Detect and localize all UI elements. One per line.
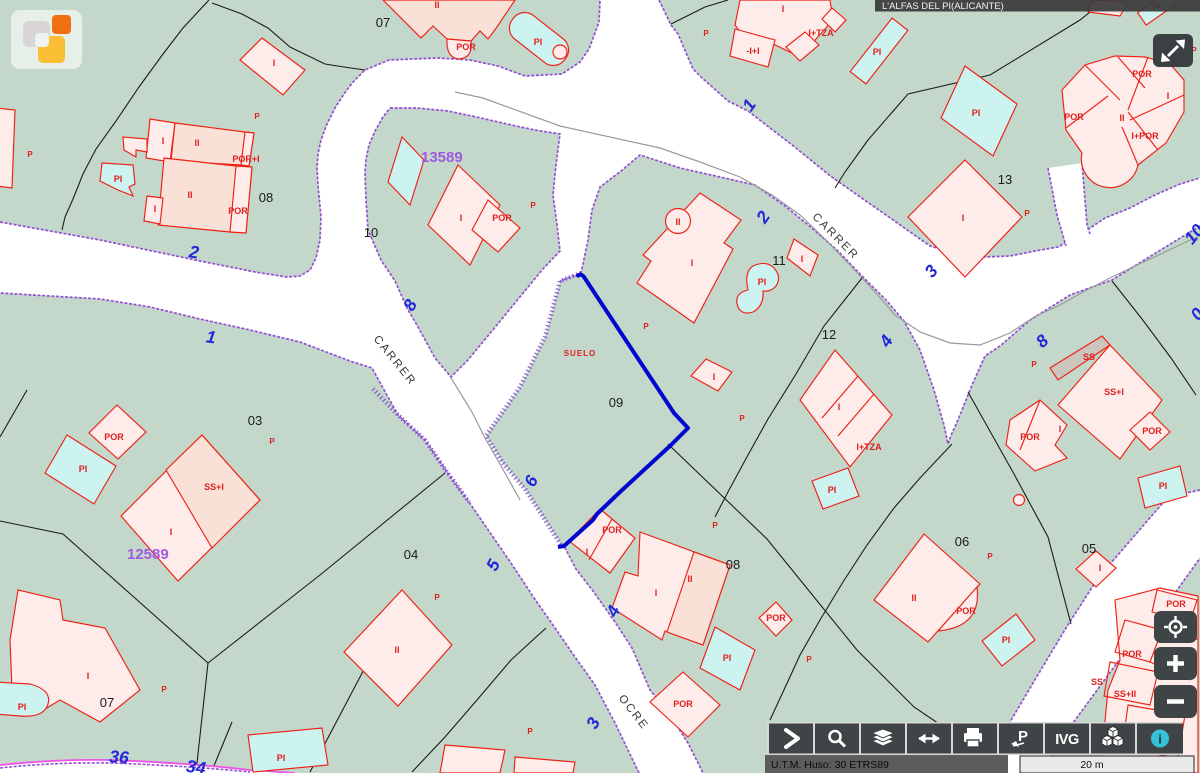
svg-text:POR: POR xyxy=(104,432,124,442)
svg-text:10: 10 xyxy=(364,225,378,240)
svg-text:I: I xyxy=(838,402,841,412)
svg-text:POR: POR xyxy=(1142,426,1162,436)
svg-text:SS+II: SS+II xyxy=(1114,689,1136,699)
svg-text:POR: POR xyxy=(1132,69,1152,79)
svg-text:07: 07 xyxy=(100,695,114,710)
svg-text:PI: PI xyxy=(1159,481,1168,491)
svg-text:P: P xyxy=(527,727,533,736)
svg-text:PI: PI xyxy=(828,485,837,495)
svg-text:U.T.M. Huso: 30 ETRS89: U.T.M. Huso: 30 ETRS89 xyxy=(771,759,889,771)
svg-text:08: 08 xyxy=(726,557,740,572)
svg-text:I: I xyxy=(273,58,276,68)
svg-text:11: 11 xyxy=(772,253,786,268)
svg-text:06: 06 xyxy=(955,534,969,549)
svg-text:POR+I: POR+I xyxy=(232,154,259,164)
svg-text:03: 03 xyxy=(248,413,262,428)
svg-text:12: 12 xyxy=(822,327,836,342)
svg-text:P: P xyxy=(806,655,812,664)
svg-text:05: 05 xyxy=(1082,541,1096,556)
svg-text:09: 09 xyxy=(609,395,623,410)
svg-text:PI: PI xyxy=(873,47,882,57)
svg-text:P: P xyxy=(703,29,709,38)
svg-text:POR: POR xyxy=(602,525,622,535)
svg-text:P: P xyxy=(254,112,260,121)
svg-text:POR: POR xyxy=(492,213,512,223)
svg-text:SS: SS xyxy=(1091,677,1103,687)
svg-text:12589: 12589 xyxy=(127,546,169,563)
svg-text:PI: PI xyxy=(79,464,88,474)
svg-text:POR: POR xyxy=(673,699,693,709)
svg-text:-I+I: -I+I xyxy=(746,46,759,56)
svg-text:I+POR: I+POR xyxy=(1131,131,1159,141)
svg-text:P: P xyxy=(643,322,649,331)
svg-text:POR: POR xyxy=(1020,432,1040,442)
svg-text:P: P xyxy=(739,414,745,423)
svg-text:I: I xyxy=(713,372,716,382)
svg-text:I: I xyxy=(586,547,589,557)
svg-text:POR: POR xyxy=(766,613,786,623)
svg-text:36: 36 xyxy=(109,746,130,767)
svg-text:P: P xyxy=(530,201,536,210)
svg-text:I: I xyxy=(460,213,463,223)
svg-text:II: II xyxy=(394,645,399,655)
svg-text:P: P xyxy=(987,552,993,561)
svg-text:SS: SS xyxy=(1083,352,1095,362)
svg-text:POR: POR xyxy=(456,42,476,52)
svg-text:07: 07 xyxy=(376,15,390,30)
svg-text:i: i xyxy=(1158,732,1162,747)
svg-text:I: I xyxy=(170,527,173,537)
svg-text:POR: POR xyxy=(956,606,976,616)
svg-text:PI: PI xyxy=(758,277,767,287)
svg-text:II: II xyxy=(1119,113,1124,123)
svg-text:P: P xyxy=(1031,360,1037,369)
svg-text:POR: POR xyxy=(1166,599,1186,609)
svg-text:PI: PI xyxy=(972,108,981,118)
svg-text:P: P xyxy=(712,521,718,530)
svg-text:04: 04 xyxy=(404,547,418,562)
svg-text:L'ALFAS DEL PI(ALICANTE): L'ALFAS DEL PI(ALICANTE) xyxy=(882,1,1004,12)
svg-text:II: II xyxy=(911,593,916,603)
svg-text:PI: PI xyxy=(277,753,286,763)
svg-text:I: I xyxy=(801,254,804,264)
svg-text:II: II xyxy=(194,138,199,148)
svg-text:I: I xyxy=(87,671,90,681)
svg-text:13589: 13589 xyxy=(421,149,463,166)
svg-text:I: I xyxy=(655,588,658,598)
svg-text:I: I xyxy=(962,213,965,223)
svg-text:I: I xyxy=(1059,424,1062,434)
svg-text:13: 13 xyxy=(998,172,1012,187)
svg-text:P: P xyxy=(434,593,440,602)
svg-text:PI: PI xyxy=(723,653,732,663)
svg-text:PI: PI xyxy=(534,37,543,47)
svg-text:II: II xyxy=(434,0,439,10)
svg-text:POR: POR xyxy=(228,206,248,216)
svg-text:PI: PI xyxy=(1002,635,1011,645)
svg-text:P: P xyxy=(269,437,275,446)
svg-text:I: I xyxy=(1099,563,1102,573)
svg-text:20 m: 20 m xyxy=(1080,759,1104,771)
svg-text:I+TZA: I+TZA xyxy=(856,442,882,452)
svg-text:P: P xyxy=(27,150,33,159)
svg-text:POR: POR xyxy=(1064,112,1084,122)
svg-text:PI: PI xyxy=(18,702,27,712)
svg-text:II: II xyxy=(687,574,692,584)
svg-text:SS+I: SS+I xyxy=(204,482,224,492)
svg-text:SUELO: SUELO xyxy=(564,349,597,358)
svg-text:I: I xyxy=(154,204,157,214)
svg-text:I: I xyxy=(691,258,694,268)
svg-text:I: I xyxy=(782,4,785,14)
svg-text:P: P xyxy=(161,685,167,694)
svg-text:II: II xyxy=(187,190,192,200)
svg-text:P: P xyxy=(1024,209,1030,218)
svg-text:34: 34 xyxy=(185,756,207,773)
svg-text:IVG: IVG xyxy=(1055,732,1079,748)
svg-text:I: I xyxy=(162,136,165,146)
svg-text:I: I xyxy=(1167,91,1170,101)
svg-text:II: II xyxy=(675,217,680,227)
svg-text:SS+I: SS+I xyxy=(1104,387,1124,397)
svg-text:POR: POR xyxy=(1122,649,1142,659)
svg-text:PI: PI xyxy=(114,174,123,184)
svg-text:I+TZA: I+TZA xyxy=(808,28,834,38)
svg-text:08: 08 xyxy=(259,190,273,205)
